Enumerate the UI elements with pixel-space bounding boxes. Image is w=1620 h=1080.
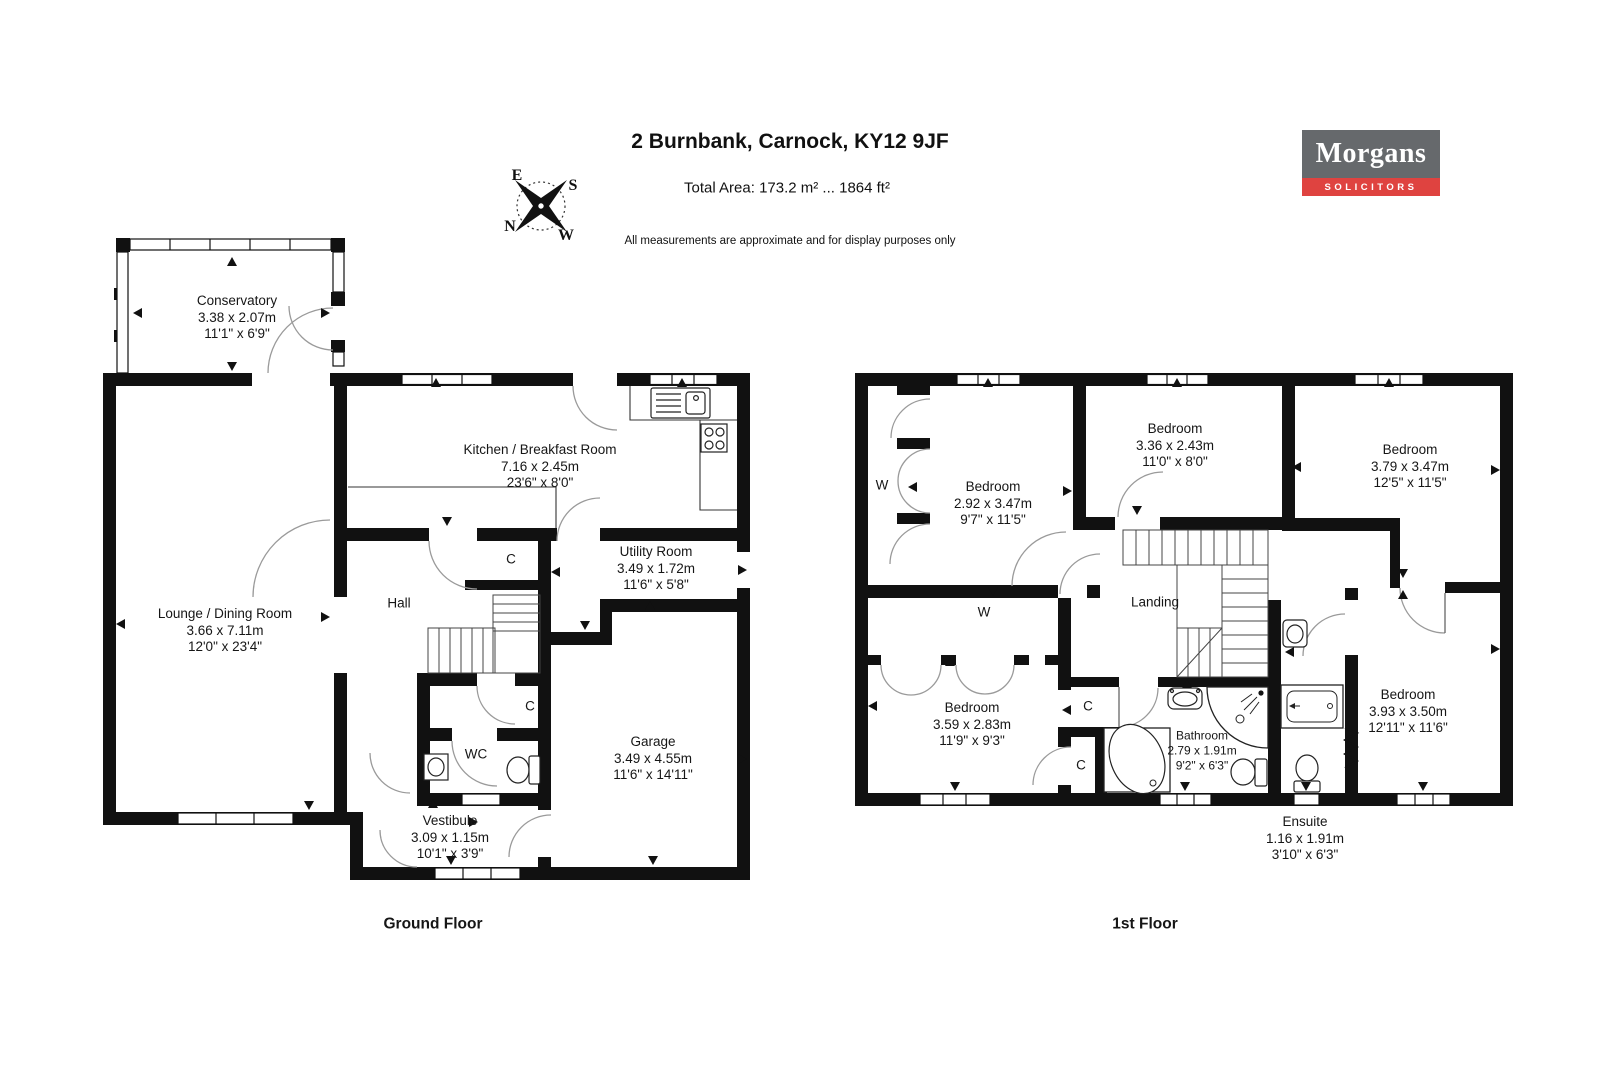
agency-logo-tagline: SOLICITORS xyxy=(1302,178,1440,196)
compass-east-label: E xyxy=(512,167,523,185)
first-floor-label: 1st Floor xyxy=(1112,914,1177,933)
bath-icon xyxy=(1099,716,1176,803)
wardrobe-label-1: W xyxy=(876,478,889,495)
room-label-bedroom-bottom-left: Bedroom 3.59 x 2.83m 11'9" x 9'3" xyxy=(933,700,1011,750)
ground-floor-label: Ground Floor xyxy=(383,914,482,933)
cupboard-label-3: C xyxy=(1083,699,1093,716)
room-label-ensuite: Ensuite 1.16 x 1.91m 3'10" x 6'3" xyxy=(1266,814,1344,864)
hob-icon xyxy=(701,424,727,452)
compass-north-label: N xyxy=(504,218,516,236)
room-label-bedroom-top-right: Bedroom 3.79 x 3.47m 12'5" x 11'5" xyxy=(1371,442,1449,492)
room-label-bathroom: Bathroom 2.79 x 1.91m 9'2" x 6'3" xyxy=(1167,729,1236,774)
room-label-lounge: Lounge / Dining Room 3.66 x 7.11m 12'0" … xyxy=(158,606,292,656)
compass-icon xyxy=(515,180,567,232)
room-label-bedroom-bottom-right: Bedroom 3.93 x 3.50m 12'11" x 11'6" xyxy=(1368,687,1448,737)
room-label-vestibule: Vestibule 3.09 x 1.15m 10'1" x 3'9" xyxy=(411,813,489,863)
room-label-utility: Utility Room 3.49 x 1.72m 11'6" x 5'8" xyxy=(617,544,695,594)
ground-stairs-icon xyxy=(428,595,540,673)
wc-basin-icon xyxy=(424,754,448,780)
agency-logo-name: Morgans xyxy=(1302,130,1440,178)
room-label-garage: Garage 3.49 x 4.55m 11'6" x 14'11" xyxy=(613,734,693,784)
room-label-wc: WC xyxy=(465,747,488,764)
cupboard-label-1: C xyxy=(506,552,516,569)
page-title: 2 Burnbank, Carnock, KY12 9JF xyxy=(631,130,948,154)
sink-icon xyxy=(651,388,710,418)
cupboard-label-2: C xyxy=(525,699,535,716)
room-label-bedroom-top-middle: Bedroom 3.36 x 2.43m 11'0" x 8'0" xyxy=(1136,421,1214,471)
ensuite-shower-icon xyxy=(1281,685,1343,728)
ground-door-arcs xyxy=(253,306,617,867)
disclaimer-text: All measurements are approximate and for… xyxy=(624,235,955,247)
wc-toilet-icon xyxy=(507,756,540,784)
total-area-text: Total Area: 173.2 m² ... 1864 ft² xyxy=(684,180,890,197)
ensuite-basin-icon xyxy=(1283,620,1307,647)
compass-south-label: S xyxy=(569,177,578,195)
floorplan-page: 2 Burnbank, Carnock, KY12 9JF Total Area… xyxy=(0,0,1620,1080)
compass-west-label: W xyxy=(558,227,574,245)
wardrobe-label-2: W xyxy=(978,605,991,622)
room-label-bedroom-top-left: Bedroom 2.92 x 3.47m 9'7" x 11'5" xyxy=(954,479,1032,529)
room-label-conservatory: Conservatory 3.38 x 2.07m 11'1" x 6'9" xyxy=(197,293,277,343)
agency-logo: Morgans SOLICITORS xyxy=(1302,130,1440,196)
room-label-kitchen: Kitchen / Breakfast Room 7.16 x 2.45m 23… xyxy=(463,442,616,492)
room-label-hall: Hall xyxy=(387,596,410,613)
cupboard-label-4: C xyxy=(1076,758,1086,775)
room-label-landing: Landing xyxy=(1131,595,1179,612)
bathroom-basin-icon xyxy=(1168,688,1202,709)
